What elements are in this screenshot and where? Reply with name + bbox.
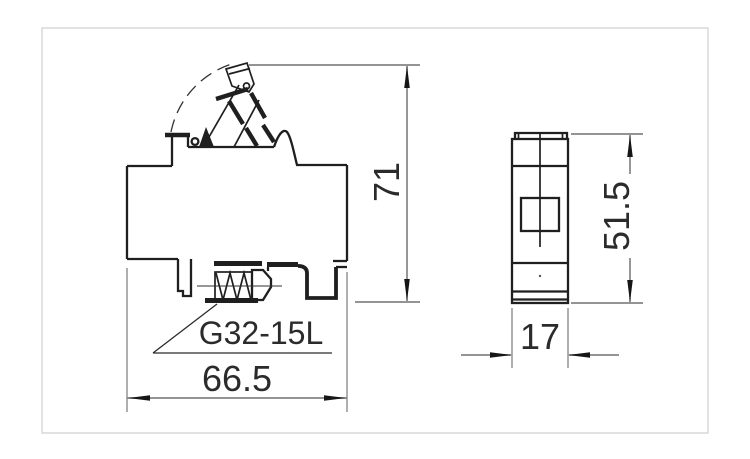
part-label: G32-15L bbox=[199, 315, 324, 351]
spring-top-plate bbox=[214, 261, 262, 266]
dim-side-height-value: 71 bbox=[366, 162, 407, 202]
drawing-page: 71 66.5 G32-15L bbox=[0, 0, 750, 459]
center-mark bbox=[539, 275, 541, 277]
dim-front-height-value: 51.5 bbox=[596, 181, 637, 251]
dim-front-width-value: 17 bbox=[520, 316, 560, 357]
background bbox=[0, 0, 750, 459]
dim-side-width-value: 66.5 bbox=[202, 358, 272, 399]
dimension-drawing: 71 66.5 G32-15L bbox=[0, 0, 750, 459]
